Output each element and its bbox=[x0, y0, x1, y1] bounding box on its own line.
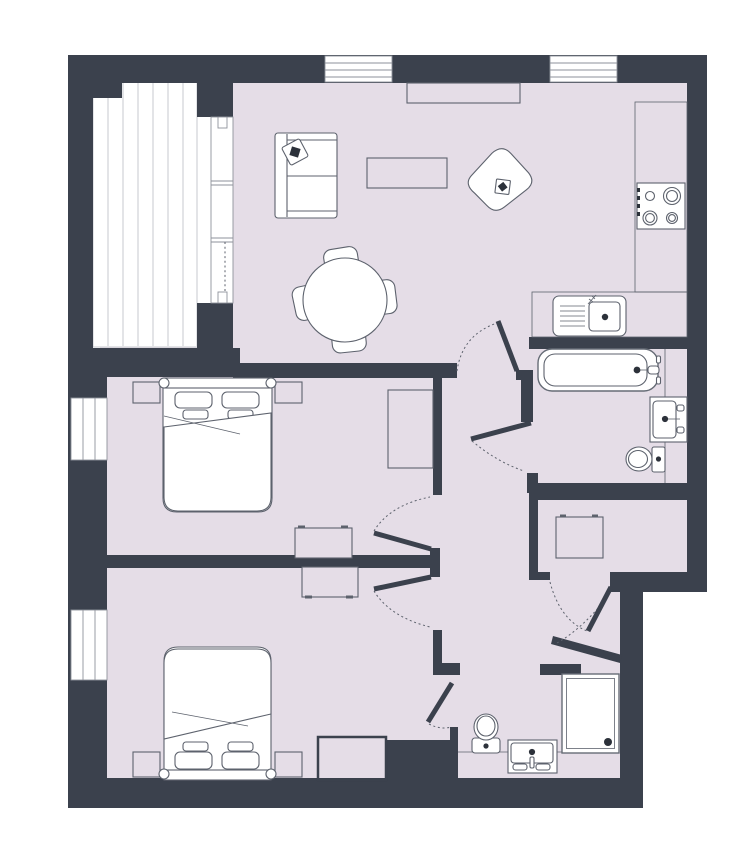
wall-balcony-stub-bottom bbox=[197, 303, 233, 355]
desk bbox=[295, 528, 352, 558]
wall-bathroom-storage bbox=[529, 483, 687, 500]
floor-plan-page bbox=[0, 0, 755, 863]
cushion bbox=[183, 742, 208, 751]
washbasin-vanity bbox=[508, 740, 557, 773]
pillow bbox=[175, 392, 212, 408]
wall-hall-bathroom bbox=[521, 370, 533, 422]
hob bbox=[637, 183, 685, 229]
pillow bbox=[222, 752, 259, 769]
bathtub bbox=[538, 349, 661, 391]
dining-table bbox=[303, 258, 387, 342]
storage-room bbox=[556, 515, 603, 559]
wall-storage-left bbox=[529, 493, 538, 580]
toilet bbox=[626, 447, 665, 472]
wall-bathroom2-left bbox=[450, 727, 458, 780]
wall-bedroom-door-jamb bbox=[430, 548, 440, 577]
wall-balcony-bottom bbox=[68, 348, 240, 377]
media-unit bbox=[407, 83, 520, 103]
wall-step bbox=[610, 572, 707, 592]
wall-right bbox=[687, 55, 707, 592]
cushion bbox=[228, 742, 253, 751]
nightstand-right bbox=[275, 382, 302, 403]
pillow bbox=[222, 392, 259, 408]
wall-bedroom-divider bbox=[107, 555, 440, 568]
balcony-glazing bbox=[211, 117, 233, 303]
blanket bbox=[164, 413, 271, 511]
window-top-right bbox=[550, 56, 617, 82]
sofa bbox=[275, 133, 337, 218]
double-bed bbox=[159, 378, 276, 512]
desk bbox=[302, 567, 358, 597]
floor-plan-drawing bbox=[0, 0, 755, 863]
wall-bottom bbox=[68, 778, 643, 808]
pillow bbox=[175, 752, 212, 769]
wall-storage-bottom-stub bbox=[538, 572, 550, 580]
wall-closet-block bbox=[386, 740, 450, 780]
wall-bedroom1-right bbox=[433, 375, 442, 495]
balcony bbox=[93, 73, 212, 347]
window-bedroom-1 bbox=[71, 398, 107, 460]
wall-right-lower bbox=[620, 592, 643, 806]
wall-balcony-stub-top bbox=[197, 55, 233, 117]
wardrobe bbox=[388, 390, 433, 468]
kitchen-sink bbox=[553, 295, 626, 336]
cushion bbox=[183, 410, 208, 419]
appliance bbox=[556, 517, 603, 558]
window-bedroom-2 bbox=[71, 610, 107, 680]
nightstand-left bbox=[133, 752, 160, 777]
window-top-left bbox=[325, 56, 392, 82]
coffee-table bbox=[367, 158, 447, 188]
wall-living-bedroom1 bbox=[233, 363, 457, 378]
washbasin-vanity bbox=[650, 397, 687, 442]
nightstand-left bbox=[133, 382, 160, 403]
wall-bathroom2-cap bbox=[433, 663, 460, 675]
toilet bbox=[472, 714, 500, 753]
nightstand-right bbox=[275, 752, 302, 777]
wall-left-upper bbox=[68, 55, 93, 365]
double-bed bbox=[159, 647, 276, 780]
wall-kitchen-bathroom bbox=[529, 337, 687, 349]
shower bbox=[562, 674, 619, 753]
